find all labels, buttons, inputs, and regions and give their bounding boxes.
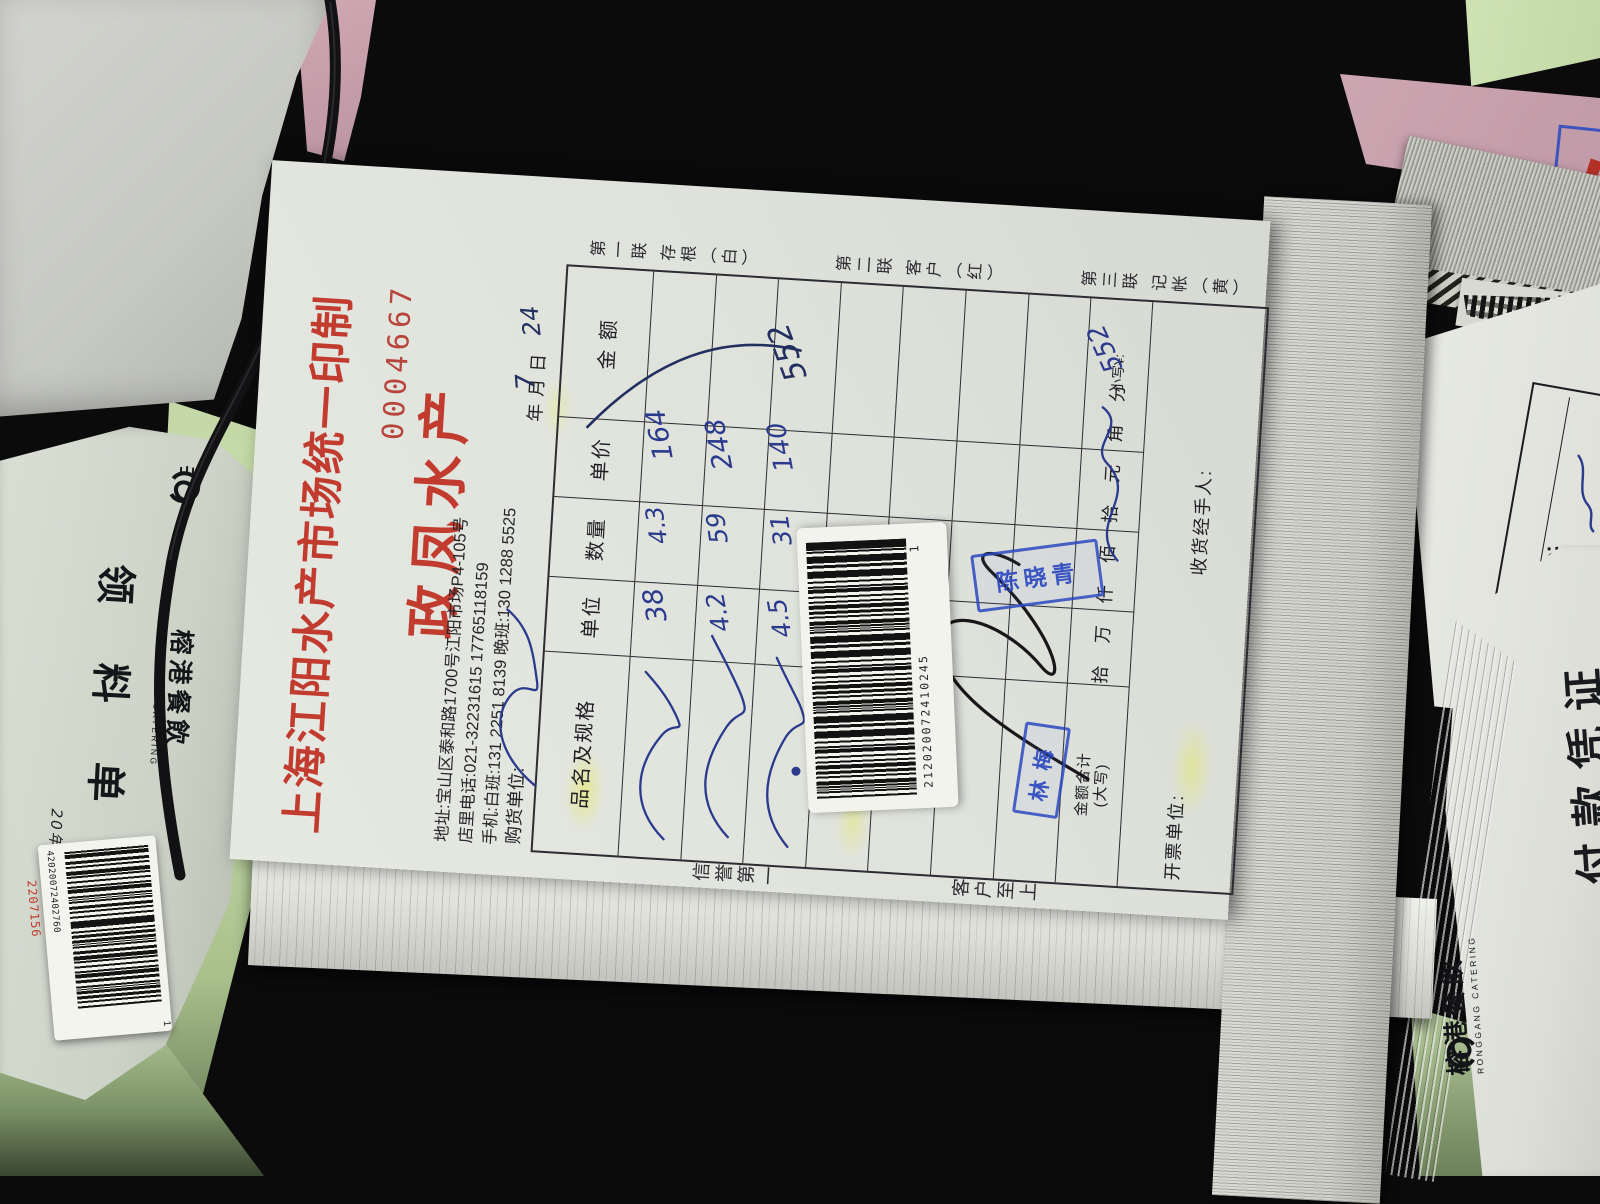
barcode-suffix: 1 bbox=[907, 545, 921, 553]
barcode-number: 212020072410245 bbox=[916, 654, 936, 788]
hw-purchaser-signature bbox=[497, 609, 546, 785]
receipt-barcode-sticker: 212020072410245 1 bbox=[796, 522, 958, 813]
handwriting-squiggles bbox=[230, 160, 1271, 920]
brand-name-cn: 榕港餐飲 bbox=[158, 628, 201, 768]
ink-blot bbox=[791, 766, 801, 776]
hw-item-name-3 bbox=[764, 658, 808, 848]
hw-item-name-2 bbox=[700, 636, 749, 838]
hw-item-name-1 bbox=[636, 672, 683, 840]
ronggang-knot-icon bbox=[160, 462, 210, 512]
barcode-flag: 1 bbox=[161, 1020, 172, 1027]
barcode-bars bbox=[64, 844, 161, 1009]
fish-market-receipt: 上海江阳水产市场统一印制 0004667 政凤水产 地址:宝山区泰和路1700号… bbox=[230, 160, 1271, 920]
hw-total-bracket-line bbox=[587, 335, 802, 441]
requisition-title: 领 料 单 bbox=[77, 563, 149, 828]
requisition-barcode-sticker: 42020072402760 1 bbox=[38, 835, 173, 1041]
barcode-bars bbox=[806, 539, 917, 799]
hw-amount-capital bbox=[1093, 407, 1126, 560]
